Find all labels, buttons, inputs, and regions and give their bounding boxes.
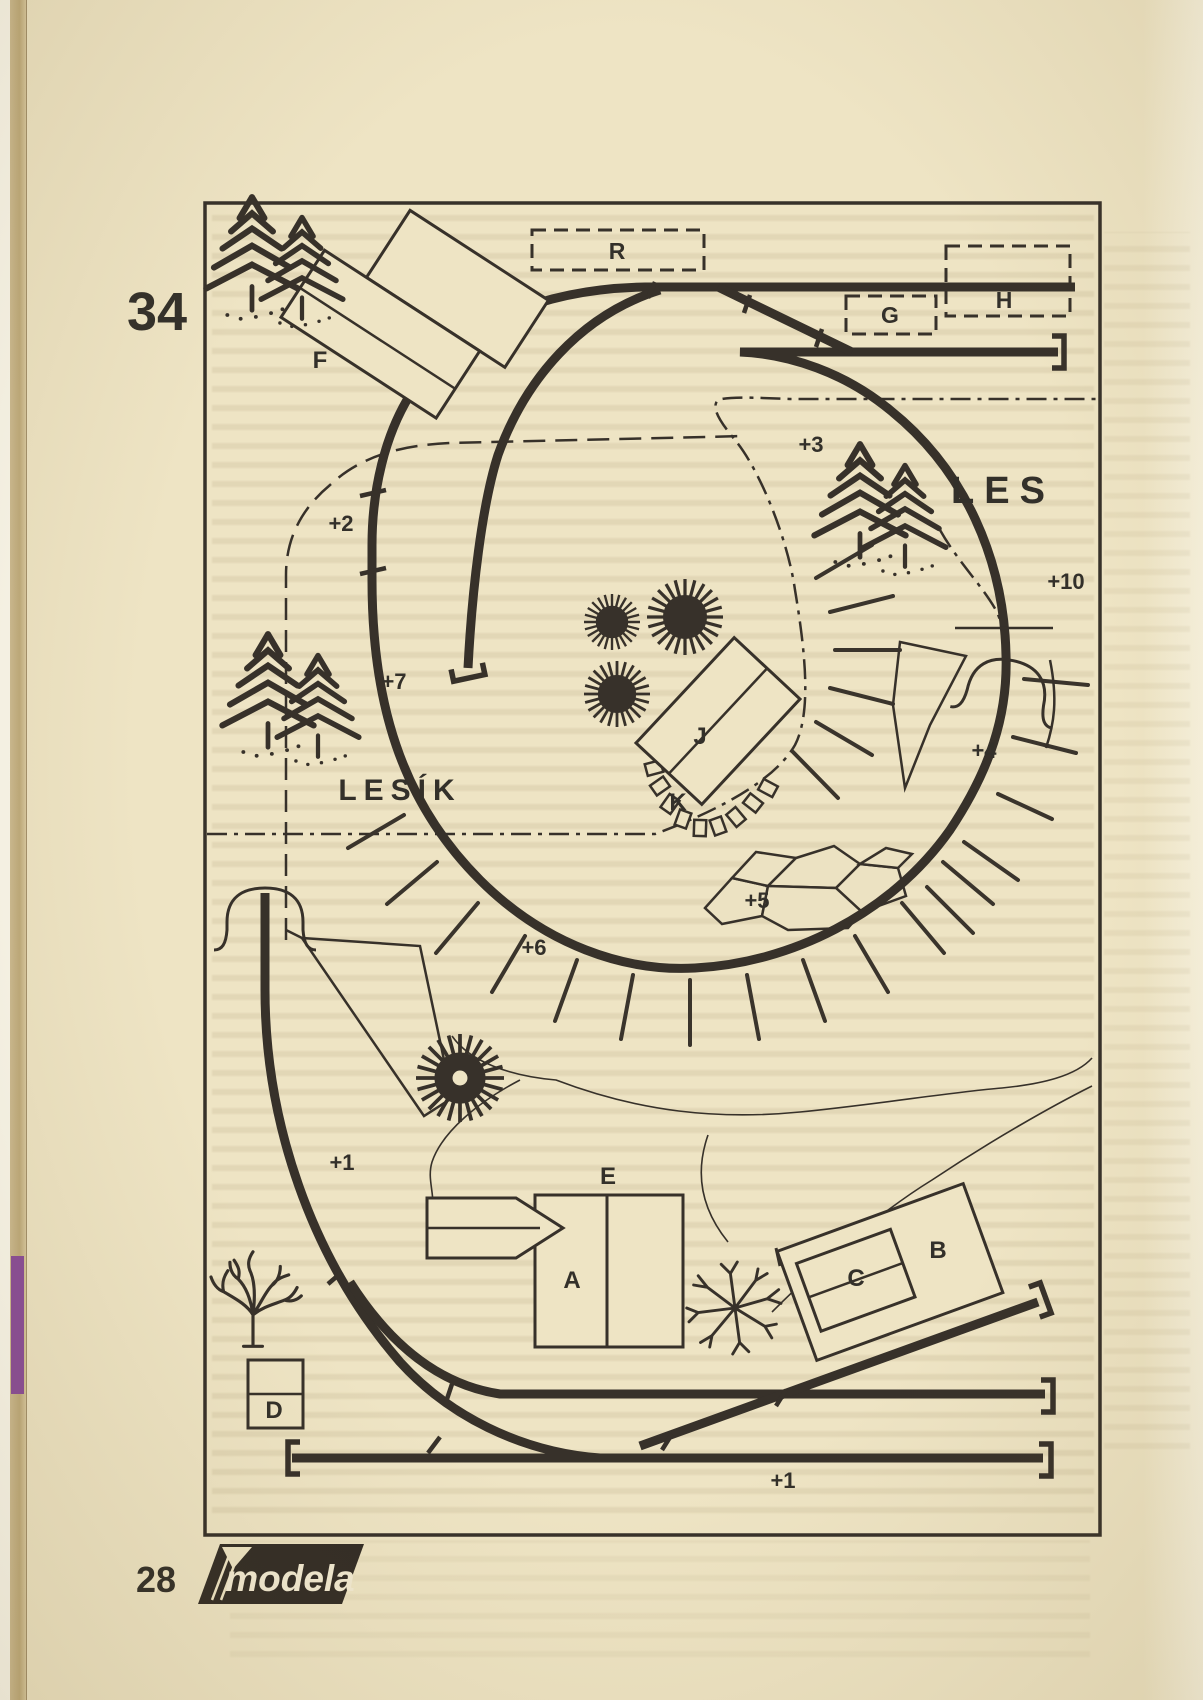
label-hidden-track-r: R	[609, 238, 626, 264]
layout-number: 34	[127, 282, 187, 342]
shrub-burst-icon	[584, 594, 640, 650]
label-elevation-plus5: +5	[744, 888, 769, 913]
contour-dashed-lesik	[286, 436, 745, 940]
building-f	[281, 183, 548, 434]
label-elevation-plus1-yard: +1	[770, 1468, 795, 1493]
retaining-wall-right	[893, 628, 1054, 788]
publisher-logo: modela	[198, 1544, 364, 1604]
label-hidden-track-h: H	[996, 287, 1013, 313]
label-elevation-plus10: +10	[1047, 569, 1084, 594]
label-elevation-plus6: +6	[521, 935, 546, 960]
label-elevation-plus7: +7	[381, 669, 406, 694]
retaining-wall-left	[302, 938, 452, 1116]
label-hidden-track-g: G	[881, 302, 899, 328]
scanned-page: 34 R G H LES LESÍK A B C D E F J K +1 +1…	[0, 0, 1203, 1700]
track-plan-diagram: 34 R G H LES LESÍK A B C D E F J K +1 +1…	[0, 0, 1203, 1700]
label-elevation-plus1-curve: +1	[329, 1150, 354, 1175]
bare-tree-radial-icon	[687, 1262, 781, 1354]
tree-burst-hollow-icon	[416, 1034, 504, 1122]
page-number: 28	[136, 1559, 176, 1600]
building-b-c	[777, 1184, 1003, 1361]
label-building-b: B	[929, 1237, 946, 1264]
label-elevation-plus4: +4	[971, 738, 997, 763]
label-building-c: C	[847, 1265, 864, 1292]
label-building-k: K	[669, 789, 687, 816]
label-building-e: E	[600, 1163, 616, 1190]
label-building-j: J	[693, 723, 706, 750]
bare-tree-icon	[211, 1252, 301, 1347]
label-forest-lesik: LESÍK	[338, 773, 461, 807]
track-branch-descent	[265, 893, 1043, 1458]
label-building-f: F	[313, 347, 328, 374]
label-elevation-plus2: +2	[328, 511, 353, 536]
shrub-burst-icon	[584, 661, 650, 727]
shrub-burst-icon	[647, 579, 723, 655]
building-a-e	[427, 1195, 683, 1347]
label-forest-les: LES	[951, 470, 1055, 512]
publisher-logo-text: modela	[225, 1558, 355, 1599]
label-building-a: A	[563, 1267, 580, 1294]
label-building-d: D	[265, 1397, 282, 1424]
track-crossover	[718, 287, 852, 352]
label-elevation-plus3: +3	[798, 432, 823, 457]
rock-outcrop	[705, 846, 912, 930]
